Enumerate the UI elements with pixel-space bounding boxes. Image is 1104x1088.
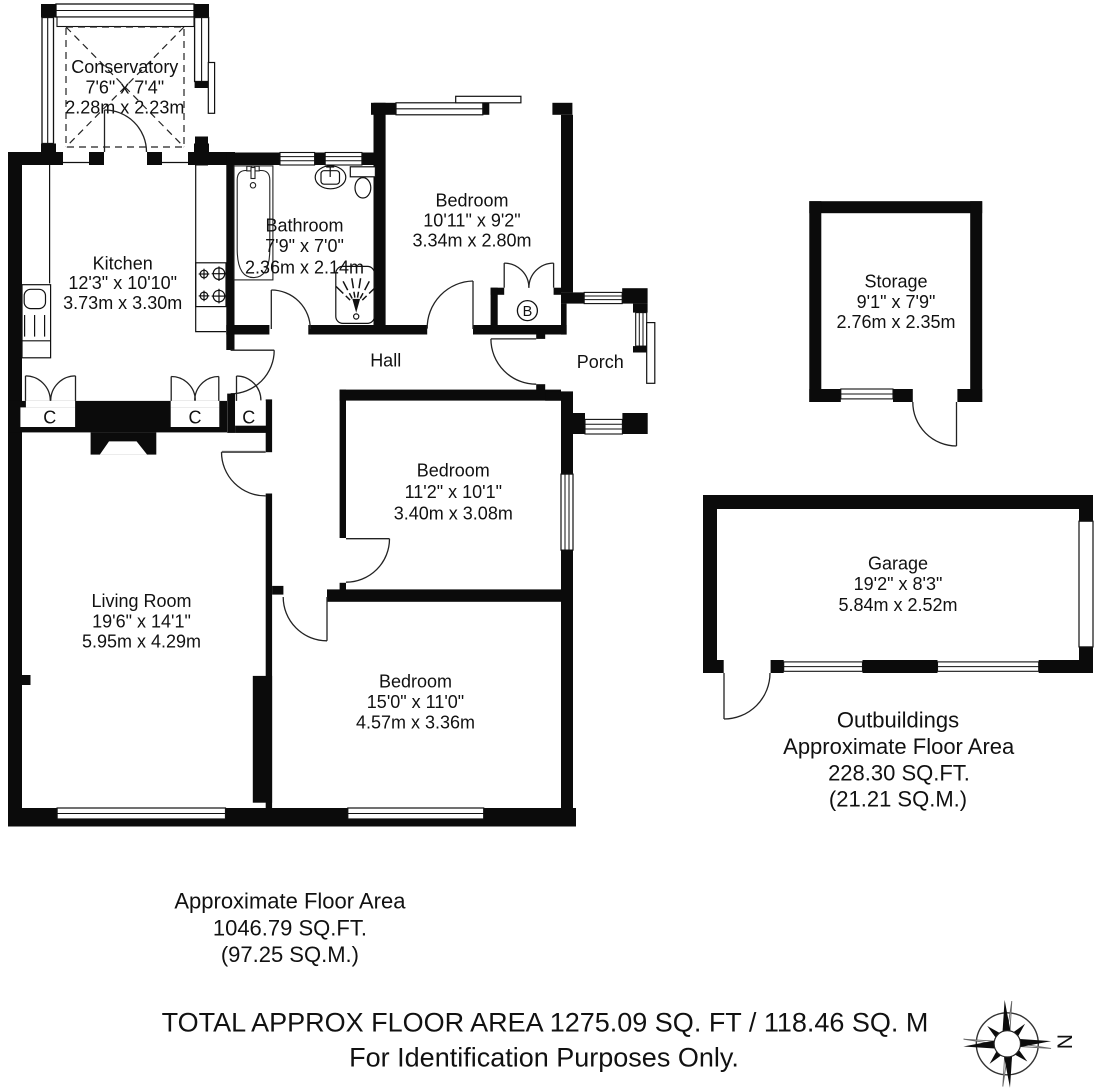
svg-text:5.95m x 4.29m: 5.95m x 4.29m: [82, 632, 201, 652]
svg-text:B: B: [523, 304, 533, 320]
svg-text:Bedroom: Bedroom: [435, 191, 508, 211]
svg-text:3.34m x 2.80m: 3.34m x 2.80m: [412, 231, 531, 251]
svg-text:12'3" x 10'10": 12'3" x 10'10": [68, 273, 177, 293]
svg-text:3.73m x 3.30m: 3.73m x 3.30m: [63, 293, 182, 313]
svg-text:C: C: [242, 408, 255, 428]
svg-text:2.76m x 2.35m: 2.76m x 2.35m: [836, 312, 955, 332]
svg-text:19'2" x 8'3": 19'2" x 8'3": [854, 574, 943, 594]
svg-text:Kitchen: Kitchen: [93, 254, 153, 274]
svg-text:Outbuildings: Outbuildings: [837, 708, 959, 733]
svg-text:Porch: Porch: [577, 352, 624, 372]
svg-text:11'2" x 10'1": 11'2" x 10'1": [405, 482, 502, 502]
svg-text:1046.79 SQ.FT.: 1046.79 SQ.FT.: [213, 915, 367, 940]
svg-text:Hall: Hall: [370, 351, 401, 371]
svg-text:Storage: Storage: [864, 272, 927, 292]
svg-text:10'11" x 9'2": 10'11" x 9'2": [423, 211, 520, 231]
svg-text:N: N: [1052, 1034, 1075, 1049]
svg-text:Approximate Floor Area: Approximate Floor Area: [783, 734, 1015, 759]
svg-text:TOTAL APPROX FLOOR AREA 1275.0: TOTAL APPROX FLOOR AREA 1275.09 SQ. FT /…: [162, 1008, 929, 1038]
svg-text:5.84m x 2.52m: 5.84m x 2.52m: [838, 595, 957, 615]
svg-text:15'0" x 11'0": 15'0" x 11'0": [367, 692, 464, 712]
svg-text:(97.25 SQ.M.): (97.25 SQ.M.): [221, 942, 359, 967]
svg-text:4.57m x 3.36m: 4.57m x 3.36m: [356, 713, 475, 733]
svg-text:9'1" x 7'9": 9'1" x 7'9": [857, 292, 936, 312]
svg-text:Conservatory: Conservatory: [71, 57, 178, 77]
svg-text:Bedroom: Bedroom: [379, 672, 452, 692]
svg-text:(21.21 SQ.M.): (21.21 SQ.M.): [829, 787, 967, 812]
svg-text:For Identification Purposes On: For Identification Purposes Only.: [349, 1043, 739, 1073]
svg-text:Approximate Floor Area: Approximate Floor Area: [174, 888, 406, 913]
svg-text:C: C: [189, 408, 202, 428]
svg-text:2.36m x 2.14m: 2.36m x 2.14m: [245, 258, 364, 278]
svg-text:Bathroom: Bathroom: [265, 216, 343, 236]
svg-text:7'9" x 7'0": 7'9" x 7'0": [265, 236, 344, 256]
svg-text:228.30 SQ.FT.: 228.30 SQ.FT.: [828, 760, 970, 785]
svg-text:7'6" x 7'4": 7'6" x 7'4": [85, 77, 164, 97]
svg-text:19'6" x 14'1": 19'6" x 14'1": [92, 611, 191, 631]
svg-text:Bedroom: Bedroom: [417, 461, 490, 481]
svg-text:Garage: Garage: [868, 554, 928, 574]
svg-text:Living Room: Living Room: [91, 591, 191, 611]
svg-text:C: C: [43, 408, 56, 428]
svg-text:3.40m x 3.08m: 3.40m x 3.08m: [394, 504, 513, 524]
